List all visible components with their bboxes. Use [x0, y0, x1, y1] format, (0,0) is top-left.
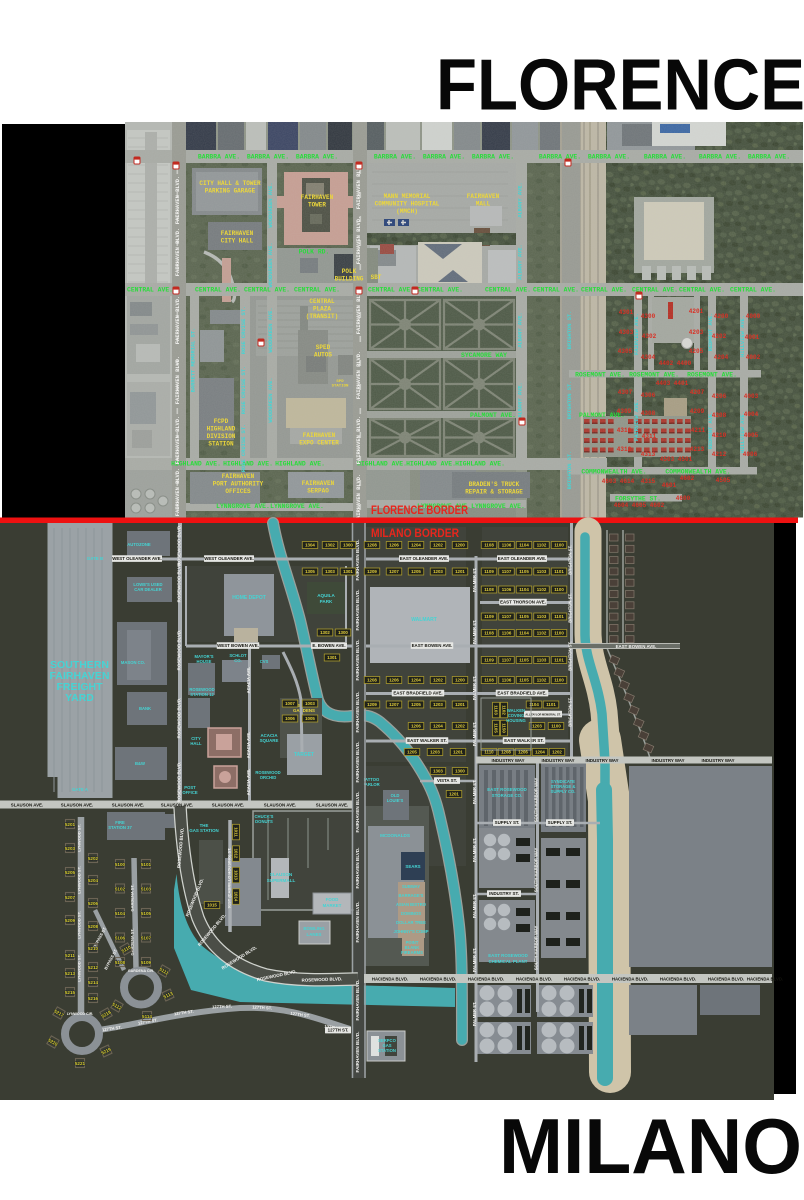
- svg-text:1300: 1300: [455, 769, 465, 774]
- svg-text:5208: 5208: [88, 924, 99, 929]
- svg-text:FIREARMS: FIREARMS: [401, 950, 423, 955]
- svg-text:ASIAN BISTRO: ASIAN BISTRO: [396, 902, 427, 907]
- svg-text:4308: 4308: [641, 410, 656, 417]
- svg-text:CENTRAL AVE.: CENTRAL AVE.: [195, 287, 241, 294]
- svg-text:SEARS: SEARS: [405, 864, 420, 869]
- svg-text:HIGHLAND AVE.: HIGHLAND AVE.: [406, 461, 456, 468]
- svg-text:EAST ROSEWOOD: EAST ROSEWOOD: [487, 787, 527, 792]
- svg-text:BARRAGE'S: BARRAGE'S: [399, 893, 424, 898]
- svg-text:EAST THORSON AVE.: EAST THORSON AVE.: [500, 600, 546, 605]
- svg-text:4210: 4210: [712, 432, 727, 439]
- svg-text:BARBRA AVE.: BARBRA AVE.: [699, 154, 741, 161]
- svg-text:1206: 1206: [389, 543, 399, 548]
- svg-text:5202: 5202: [88, 856, 99, 861]
- svg-text:LYNWOOD ST.: LYNWOOD ST.: [77, 866, 82, 893]
- svg-text:INDUSTRY WAY: INDUSTRY WAY: [701, 758, 734, 763]
- svg-text:5100: 5100: [115, 862, 126, 867]
- svg-text:1201: 1201: [453, 750, 463, 755]
- svg-text:TOWER: TOWER: [308, 202, 326, 209]
- svg-text:1305: 1305: [305, 569, 315, 574]
- svg-text:1101: 1101: [554, 569, 564, 574]
- svg-text:5210: 5210: [88, 946, 99, 951]
- svg-text:1100: 1100: [554, 678, 564, 683]
- svg-text:1104: 1104: [519, 543, 529, 548]
- svg-text:CVS: CVS: [260, 659, 269, 664]
- svg-text:1102: 1102: [537, 631, 547, 636]
- svg-text:SUBWAY: SUBWAY: [402, 884, 420, 889]
- svg-text:BRIGHTON ST.: BRIGHTON ST.: [568, 545, 573, 574]
- svg-text:1204: 1204: [411, 678, 421, 683]
- svg-text:HOME DEPOT: HOME DEPOT: [232, 595, 266, 601]
- svg-text:FAIRHAVEN: FAIRHAVEN: [302, 480, 335, 487]
- svg-text:1303: 1303: [433, 769, 443, 774]
- svg-text:4004: 4004: [744, 411, 759, 418]
- svg-text:SUPERMALL: SUPERMALL: [267, 878, 296, 883]
- svg-text:1202: 1202: [433, 543, 443, 548]
- svg-text:MALL: MALL: [476, 201, 491, 208]
- svg-text:FAIRHAVEN BLVD.: FAIRHAVEN BLVD.: [356, 351, 362, 400]
- svg-text:LANES: LANES: [307, 932, 322, 937]
- svg-text:ROSEWOOD BLVD.: ROSEWOOD BLVD.: [177, 698, 182, 739]
- svg-text:MASON CO.: MASON CO.: [121, 660, 145, 665]
- svg-text:4201: 4201: [689, 308, 704, 315]
- svg-text:CITY HALL & TOWER: CITY HALL & TOWER: [199, 180, 261, 187]
- svg-text:SQUARE: SQUARE: [260, 738, 279, 743]
- svg-text:SLAUSON AVE.: SLAUSON AVE.: [61, 803, 93, 808]
- svg-text:1200: 1200: [455, 678, 465, 683]
- svg-text:4204: 4204: [714, 354, 729, 361]
- svg-text:5101: 5101: [141, 862, 152, 867]
- svg-text:SUPPLY ST.: SUPPLY ST.: [495, 820, 520, 825]
- svg-text:4315: 4315: [641, 478, 656, 485]
- svg-text:CENTRAL AVE.: CENTRAL AVE.: [679, 287, 725, 294]
- svg-text:PLAZA: PLAZA: [313, 306, 331, 313]
- svg-text:GATE A: GATE A: [72, 787, 89, 792]
- svg-text:4211: 4211: [691, 427, 706, 434]
- svg-text:BARBRA AVE.: BARBRA AVE.: [472, 154, 514, 161]
- svg-text:BRIGHTON ST.: BRIGHTON ST.: [567, 381, 573, 420]
- svg-text:1303: 1303: [325, 569, 335, 574]
- svg-text:ROSE CRUISE ST.: ROSE CRUISE ST.: [241, 366, 247, 415]
- svg-text:1206: 1206: [389, 678, 399, 683]
- svg-text:4208: 4208: [712, 412, 727, 419]
- svg-text:1102: 1102: [537, 678, 547, 683]
- svg-text:SLAUSON AVE.: SLAUSON AVE.: [316, 803, 348, 808]
- svg-text:EAST WALKER ST.: EAST WALKER ST.: [407, 738, 447, 743]
- svg-text:CENTRAL AVE.: CENTRAL AVE.: [485, 287, 531, 294]
- svg-text:ROSEMONT AVE.: ROSEMONT AVE.: [575, 372, 625, 379]
- svg-text:1301: 1301: [343, 569, 353, 574]
- svg-text:CITY HALL: CITY HALL: [221, 238, 254, 245]
- svg-text:1105: 1105: [519, 658, 529, 663]
- svg-text:CENTRAL AVE.: CENTRAL AVE.: [730, 287, 776, 294]
- svg-text:4001: 4001: [745, 334, 760, 341]
- svg-text:ROSEWOOD BLVD.: ROSEWOOD BLVD.: [177, 762, 182, 803]
- svg-text:MCDONALDS: MCDONALDS: [380, 833, 410, 838]
- svg-text:LYNNGROVE AVE.: LYNNGROVE AVE.: [270, 503, 324, 510]
- svg-text:1103: 1103: [537, 569, 547, 574]
- svg-text:1100: 1100: [554, 587, 564, 592]
- svg-text:4313: 4313: [641, 451, 656, 458]
- svg-text:1204: 1204: [433, 724, 443, 729]
- svg-text:LYNNGROVE AVE.: LYNNGROVE AVE.: [471, 503, 525, 510]
- svg-text:5221: 5221: [75, 1061, 86, 1066]
- svg-text:4306: 4306: [641, 392, 656, 399]
- svg-text:PALMER ST.: PALMER ST.: [472, 568, 477, 593]
- svg-text:BARBRA AVE.: BARBRA AVE.: [423, 154, 465, 161]
- svg-text:5108: 5108: [115, 960, 126, 965]
- svg-text:PALMER ST.: PALMER ST.: [472, 838, 477, 863]
- svg-text:BRIGHTON ST.: BRIGHTON ST.: [568, 697, 573, 726]
- svg-text:COMMONWEALTH AVE.: COMMONWEALTH AVE.: [665, 469, 730, 476]
- svg-text:WOODGREEN AVE.: WOODGREEN AVE.: [268, 307, 274, 352]
- svg-text:STATION 37: STATION 37: [108, 825, 132, 830]
- svg-text:EAST BRADFIELD AVE.: EAST BRADFIELD AVE.: [497, 691, 546, 696]
- svg-text:PALMER ST.: PALMER ST.: [472, 780, 477, 805]
- svg-text:1304: 1304: [305, 543, 315, 548]
- svg-text:1150: 1150: [501, 723, 506, 733]
- svg-text:BRIGHTON ST.: BRIGHTON ST.: [567, 451, 573, 490]
- svg-text:4202: 4202: [712, 333, 727, 340]
- svg-text:AUTOZONE: AUTOZONE: [127, 542, 151, 547]
- svg-text:1201: 1201: [449, 792, 459, 797]
- svg-text:AQUILA: AQUILA: [317, 593, 335, 598]
- svg-text:FLORENCE BORDER: FLORENCE BORDER: [371, 503, 468, 517]
- svg-text:1107: 1107: [502, 569, 512, 574]
- svg-text:WOODGREEN AVE.: WOODGREEN AVE.: [268, 242, 274, 287]
- svg-text:BARRETT MEMORIAL ST.: BARRETT MEMORIAL ST.: [191, 328, 197, 393]
- svg-text:1105: 1105: [519, 678, 529, 683]
- svg-text:1106: 1106: [502, 587, 512, 592]
- svg-text:5114: 5114: [142, 1014, 152, 1019]
- svg-text:GARDENA ST.: GARDENA ST.: [130, 885, 135, 912]
- svg-text:5215: 5215: [65, 990, 76, 995]
- svg-text:FAIRHAVEN BLVD.: FAIRHAVEN BLVD.: [175, 468, 181, 517]
- svg-text:FAIRHAVEN BLVD.: FAIRHAVEN BLVD.: [355, 902, 360, 943]
- svg-text:5213: 5213: [65, 971, 76, 976]
- svg-text:FAIRHAVEN BLVD.: FAIRHAVEN BLVD.: [355, 590, 360, 631]
- svg-text:1302: 1302: [320, 630, 330, 635]
- svg-text:SPED: SPED: [316, 344, 331, 351]
- svg-text:REPAIR & STORAGE: REPAIR & STORAGE: [465, 489, 523, 496]
- svg-text:4312: 4312: [617, 446, 632, 453]
- svg-text:1205: 1205: [407, 750, 417, 755]
- svg-text:5206: 5206: [88, 901, 99, 906]
- svg-text:1109: 1109: [484, 569, 494, 574]
- svg-text:SOUTH HARBOR WAY: SOUTH HARBOR WAY: [534, 848, 539, 893]
- svg-text:STORAGE CO.: STORAGE CO.: [492, 793, 523, 798]
- svg-text:HACIENDA BLVD.: HACIENDA BLVD.: [708, 977, 744, 982]
- svg-text:EAST BOWEN AVE.: EAST BOWEN AVE.: [412, 643, 453, 648]
- svg-text:INDUSTRY ST.: INDUSTRY ST.: [489, 891, 519, 896]
- svg-text:5105: 5105: [141, 911, 152, 916]
- svg-text:WEST BOWEN AVE.: WEST BOWEN AVE.: [217, 643, 259, 648]
- svg-text:BARBRA AVE.: BARBRA AVE.: [644, 154, 686, 161]
- svg-text:EAST OLEANDER AVE.: EAST OLEANDER AVE.: [498, 556, 547, 561]
- svg-text:FAIRHAVEN BLVD.: FAIRHAVEN BLVD.: [175, 356, 181, 405]
- svg-text:4212: 4212: [712, 451, 727, 458]
- svg-text:SOUTH HARBOR WAY: SOUTH HARBOR WAY: [534, 926, 539, 971]
- svg-text:WEST OLEANDER AVE.: WEST OLEANDER AVE.: [112, 556, 162, 561]
- svg-text:CENTRAL AVE.: CENTRAL AVE.: [294, 287, 340, 294]
- svg-text:4207: 4207: [690, 389, 705, 396]
- svg-text:B&W: B&W: [135, 761, 145, 766]
- svg-text:1203: 1203: [430, 750, 440, 755]
- svg-text:1005: 1005: [305, 716, 315, 721]
- svg-text:4000: 4000: [746, 313, 761, 320]
- svg-text:STATION: STATION: [208, 441, 234, 448]
- svg-text:CENTRAL AVE.: CENTRAL AVE.: [581, 287, 627, 294]
- svg-text:BARBRA AVE.: BARBRA AVE.: [247, 154, 289, 161]
- svg-text:FOOD: FOOD: [326, 897, 339, 902]
- svg-text:1102: 1102: [537, 543, 547, 548]
- svg-text:CENTRAL AVE.: CENTRAL AVE.: [127, 287, 173, 294]
- svg-text:4602: 4602: [680, 475, 695, 482]
- svg-text:4600: 4600: [676, 495, 691, 502]
- svg-text:4209: 4209: [690, 408, 705, 415]
- svg-text:1100: 1100: [551, 724, 561, 729]
- svg-text:4503 4501: 4503 4501: [660, 456, 693, 463]
- svg-text:INDUSTRY WAY: INDUSTRY WAY: [491, 758, 524, 763]
- svg-text:4505: 4505: [716, 477, 731, 484]
- svg-text:PALMER ST.: PALMER ST.: [472, 1002, 477, 1027]
- svg-text:ALBANY AVE.: ALBANY AVE.: [518, 244, 524, 280]
- svg-text:HACIENDA BLVD.: HACIENDA BLVD.: [747, 977, 783, 982]
- svg-text:AUTOS: AUTOS: [314, 352, 332, 359]
- svg-text:ACACIA AVE.: ACACIA AVE.: [246, 769, 251, 796]
- svg-text:1109: 1109: [484, 614, 494, 619]
- svg-text:OFFICES: OFFICES: [225, 488, 251, 495]
- svg-text:PALMONT AVE.: PALMONT AVE.: [470, 412, 516, 419]
- svg-text:BARBRA AVE.: BARBRA AVE.: [198, 154, 240, 161]
- svg-text:MILANO: MILANO: [499, 1102, 802, 1190]
- svg-text:1205: 1205: [411, 702, 421, 707]
- svg-text:1107: 1107: [502, 614, 512, 619]
- svg-text:1101: 1101: [554, 614, 564, 619]
- svg-text:PALMER ST.: PALMER ST.: [472, 620, 477, 645]
- svg-text:CENTRAL: CENTRAL: [309, 298, 335, 305]
- svg-text:PARK: PARK: [320, 599, 333, 604]
- svg-text:4006: 4006: [743, 451, 758, 458]
- svg-text:1203: 1203: [433, 702, 443, 707]
- svg-text:127TH ST.: 127TH ST.: [212, 1004, 232, 1010]
- svg-text:GARDENA CIR.: GARDENA CIR.: [128, 969, 154, 973]
- svg-text:E. BOWEN AVE.: E. BOWEN AVE.: [312, 643, 345, 648]
- svg-text:EXPO CENTER: EXPO CENTER: [299, 440, 339, 447]
- svg-text:1302: 1302: [325, 543, 335, 548]
- svg-text:BRADEN'S TRUCK: BRADEN'S TRUCK: [469, 481, 520, 488]
- svg-text:1204: 1204: [411, 543, 421, 548]
- svg-text:4005: 4005: [744, 432, 759, 439]
- svg-text:FAIRHAVEN BLVD.: FAIRHAVEN BLVD.: [355, 742, 360, 783]
- svg-text:POLK RD.: POLK RD.: [299, 249, 330, 256]
- svg-text:PARKING GARAGE: PARKING GARAGE: [205, 188, 256, 195]
- svg-text:HIGHLAND AVE.: HIGHLAND AVE.: [275, 461, 325, 468]
- svg-text:1104: 1104: [519, 631, 529, 636]
- svg-text:1207: 1207: [389, 702, 399, 707]
- svg-text:BRIGHTON ST.: BRIGHTON ST.: [568, 593, 573, 622]
- svg-text:STATION: STATION: [378, 1048, 396, 1053]
- svg-text:1106: 1106: [502, 678, 512, 683]
- svg-text:SLAUSON AVE.: SLAUSON AVE.: [11, 803, 43, 808]
- svg-text:5103: 5103: [141, 886, 152, 891]
- svg-text:4304: 4304: [641, 354, 656, 361]
- svg-text:1100: 1100: [554, 543, 564, 548]
- svg-text:4311: 4311: [642, 433, 657, 440]
- svg-text:STATION: STATION: [332, 385, 349, 389]
- svg-text:CENTRAL AVE.: CENTRAL AVE.: [244, 287, 290, 294]
- svg-text:ALBANY AVE.: ALBANY AVE.: [518, 382, 524, 418]
- svg-text:1202: 1202: [455, 724, 465, 729]
- svg-text:1301: 1301: [327, 655, 337, 660]
- svg-text:WOODGREEN AVE.: WOODGREEN AVE.: [268, 182, 274, 227]
- svg-text:CENTRAL AVE.: CENTRAL AVE.: [533, 287, 579, 294]
- svg-text:4203: 4203: [689, 329, 704, 336]
- svg-text:1105: 1105: [519, 569, 529, 574]
- svg-text:FAIRHAVEN: FAIRHAVEN: [301, 194, 334, 201]
- svg-text:HALL: HALL: [190, 741, 202, 746]
- svg-text:1207: 1207: [389, 569, 399, 574]
- svg-text:DOLLAR TREE: DOLLAR TREE: [396, 920, 426, 925]
- svg-text:LYNWOOD CIR.: LYNWOOD CIR.: [67, 1012, 94, 1016]
- svg-text:4307: 4307: [618, 389, 633, 396]
- svg-text:HACIENDA BLVD.: HACIENDA BLVD.: [468, 977, 504, 982]
- svg-text:4205: 4205: [689, 348, 704, 355]
- svg-text:5211: 5211: [65, 953, 75, 958]
- svg-text:HACIENDA BLVD.: HACIENDA BLVD.: [516, 977, 552, 982]
- svg-text:1011: 1011: [233, 827, 238, 837]
- svg-text:1202: 1202: [433, 678, 443, 683]
- svg-text:4403 4401: 4403 4401: [656, 380, 689, 387]
- svg-text:CENTRAL AVE.: CENTRAL AVE.: [417, 287, 463, 294]
- svg-text:4305: 4305: [618, 348, 633, 355]
- svg-text:MARKET: MARKET: [323, 903, 342, 908]
- svg-text:1101: 1101: [546, 702, 556, 707]
- svg-text:LYNWOOD ST.: LYNWOOD ST.: [77, 911, 82, 938]
- svg-text:BARBRA AVE.: BARBRA AVE.: [374, 154, 416, 161]
- svg-text:INDUSTRY WAY: INDUSTRY WAY: [585, 758, 618, 763]
- svg-text:FAIRHAVEN BLVD.: FAIRHAVEN BLVD.: [356, 416, 362, 465]
- svg-text:WALMART: WALMART: [411, 617, 437, 623]
- svg-text:1105: 1105: [519, 614, 529, 619]
- svg-text:1203: 1203: [433, 569, 443, 574]
- svg-text:1208: 1208: [367, 543, 377, 548]
- svg-text:SLAUSON AVE.: SLAUSON AVE.: [212, 803, 244, 808]
- svg-text:BRIGHTON ST.: BRIGHTON ST.: [568, 641, 573, 670]
- svg-text:5205: 5205: [65, 870, 76, 875]
- svg-text:FAIRHAVEN: FAIRHAVEN: [467, 193, 500, 200]
- svg-text:WOODGREEN AVE.: WOODGREEN AVE.: [268, 377, 274, 422]
- svg-text:1106: 1106: [502, 543, 512, 548]
- svg-text:SLAUSON AVE.: SLAUSON AVE.: [112, 803, 144, 808]
- svg-text:5102: 5102: [115, 886, 126, 891]
- svg-text:SUPPLY CO.: SUPPLY CO.: [551, 789, 576, 794]
- svg-text:1102: 1102: [537, 587, 547, 592]
- svg-text:1204: 1204: [535, 750, 545, 755]
- svg-text:EAST WALKER ST.: EAST WALKER ST.: [504, 738, 544, 743]
- svg-text:5109: 5109: [141, 960, 152, 965]
- svg-text:FAIRHAVEN BLVD.: FAIRHAVEN BLVD.: [355, 980, 360, 1021]
- svg-text:SOUTH HARBOR WAY: SOUTH HARBOR WAY: [534, 778, 539, 823]
- svg-text:1012: 1012: [233, 849, 238, 859]
- svg-text:PALMER ST.: PALMER ST.: [472, 948, 477, 973]
- svg-text:FAIRHAVEN BLVD.: FAIRHAVEN BLVD.: [175, 176, 181, 225]
- svg-text:GARDENS: GARDENS: [293, 708, 315, 713]
- svg-text:ALBANY AVE.: ALBANY AVE.: [518, 182, 524, 218]
- svg-text:4601: 4601: [662, 482, 677, 489]
- svg-text:INDUSTRY WAY: INDUSTRY WAY: [541, 758, 574, 763]
- svg-text:FCPD: FCPD: [214, 418, 229, 425]
- svg-text:1014: 1014: [233, 892, 238, 902]
- svg-text:EAST ROSEWOOD: EAST ROSEWOOD: [488, 953, 528, 958]
- svg-text:COMMUNITY HOSPITAL: COMMUNITY HOSPITAL: [375, 201, 440, 208]
- svg-text:1109: 1109: [484, 658, 494, 663]
- svg-text:4604 4605 4602: 4604 4605 4602: [614, 502, 665, 509]
- svg-text:1102: 1102: [501, 705, 506, 715]
- svg-text:ACACIA AVE.: ACACIA AVE.: [246, 667, 251, 694]
- svg-text:ROSEMONT AVE.: ROSEMONT AVE.: [687, 372, 737, 379]
- svg-text:5216: 5216: [88, 996, 99, 1001]
- svg-text:4206: 4206: [712, 393, 727, 400]
- svg-text:EAST BOWEN AVE.: EAST BOWEN AVE.: [616, 644, 657, 649]
- svg-text:HIGHLAND AVE.: HIGHLAND AVE.: [357, 461, 407, 468]
- svg-text:91ST (CABRILLO HOUSING) ST.: 91ST (CABRILLO HOUSING) ST.: [227, 848, 232, 909]
- svg-text:VISTA ST.: VISTA ST.: [437, 778, 457, 783]
- svg-text:1104: 1104: [519, 587, 529, 592]
- svg-text:1006: 1006: [285, 716, 295, 721]
- svg-text:1300: 1300: [343, 543, 353, 548]
- svg-text:TARGET: TARGET: [294, 752, 314, 758]
- svg-text:4200: 4200: [714, 313, 729, 320]
- svg-text:POLK: POLK: [342, 268, 357, 275]
- svg-text:1015: 1015: [207, 903, 217, 908]
- svg-text:HACIENDA BLVD.: HACIENDA BLVD.: [372, 977, 408, 982]
- svg-text:BARBRA AVE.: BARBRA AVE.: [296, 154, 338, 161]
- svg-text:FAIRHAVEN BLVD.: FAIRHAVEN BLVD.: [355, 692, 360, 733]
- svg-text:WEST OLEANDER AVE.: WEST OLEANDER AVE.: [204, 556, 254, 561]
- svg-text:1105: 1105: [493, 723, 498, 733]
- svg-text:PALMER ST.: PALMER ST.: [472, 676, 477, 701]
- svg-text:FAIRHAVEN: FAIRHAVEN: [303, 432, 336, 439]
- svg-text:GAS STATION: GAS STATION: [189, 828, 218, 833]
- svg-text:4213: 4213: [690, 446, 705, 453]
- svg-text:PALMER ST.: PALMER ST.: [472, 722, 477, 747]
- svg-text:FAIRVIEW AVE.: FAIRVIEW AVE.: [634, 313, 640, 355]
- svg-text:1206: 1206: [411, 724, 421, 729]
- svg-text:MILANO BORDER: MILANO BORDER: [371, 526, 459, 540]
- svg-text:LYNWOOD ST.: LYNWOOD ST.: [77, 824, 82, 851]
- svg-text:JOHNNY'S COMP: JOHNNY'S COMP: [394, 929, 429, 934]
- svg-text:FAIRHAVEN BLVD.: FAIRHAVEN BLVD.: [355, 848, 360, 889]
- svg-text:ROSEWOOD BLVD.: ROSEWOOD BLVD.: [177, 630, 182, 671]
- svg-text:1202: 1202: [552, 750, 562, 755]
- svg-text:GATE B: GATE B: [87, 556, 103, 561]
- svg-text:1107: 1107: [502, 658, 512, 663]
- svg-text:MANN MEMORIAL: MANN MEMORIAL: [384, 193, 431, 200]
- svg-text:LYNWOOD ST.: LYNWOOD ST.: [77, 954, 82, 981]
- svg-text:1103: 1103: [537, 658, 547, 663]
- svg-text:1007: 1007: [285, 701, 295, 706]
- svg-text:FAIRHAVEN BLVD.: FAIRHAVEN BLVD.: [175, 296, 181, 345]
- svg-text:1209: 1209: [367, 569, 377, 574]
- svg-text:5207: 5207: [65, 895, 76, 900]
- svg-text:FAIRHAVEN: FAIRHAVEN: [222, 473, 255, 480]
- svg-text:SERPAO: SERPAO: [307, 488, 329, 495]
- svg-text:1106: 1106: [502, 631, 512, 636]
- svg-text:4309: 4309: [617, 408, 632, 415]
- svg-text:1101: 1101: [554, 658, 564, 663]
- svg-text:FAIRHAVEN BLVD.: FAIRHAVEN BLVD.: [356, 474, 362, 523]
